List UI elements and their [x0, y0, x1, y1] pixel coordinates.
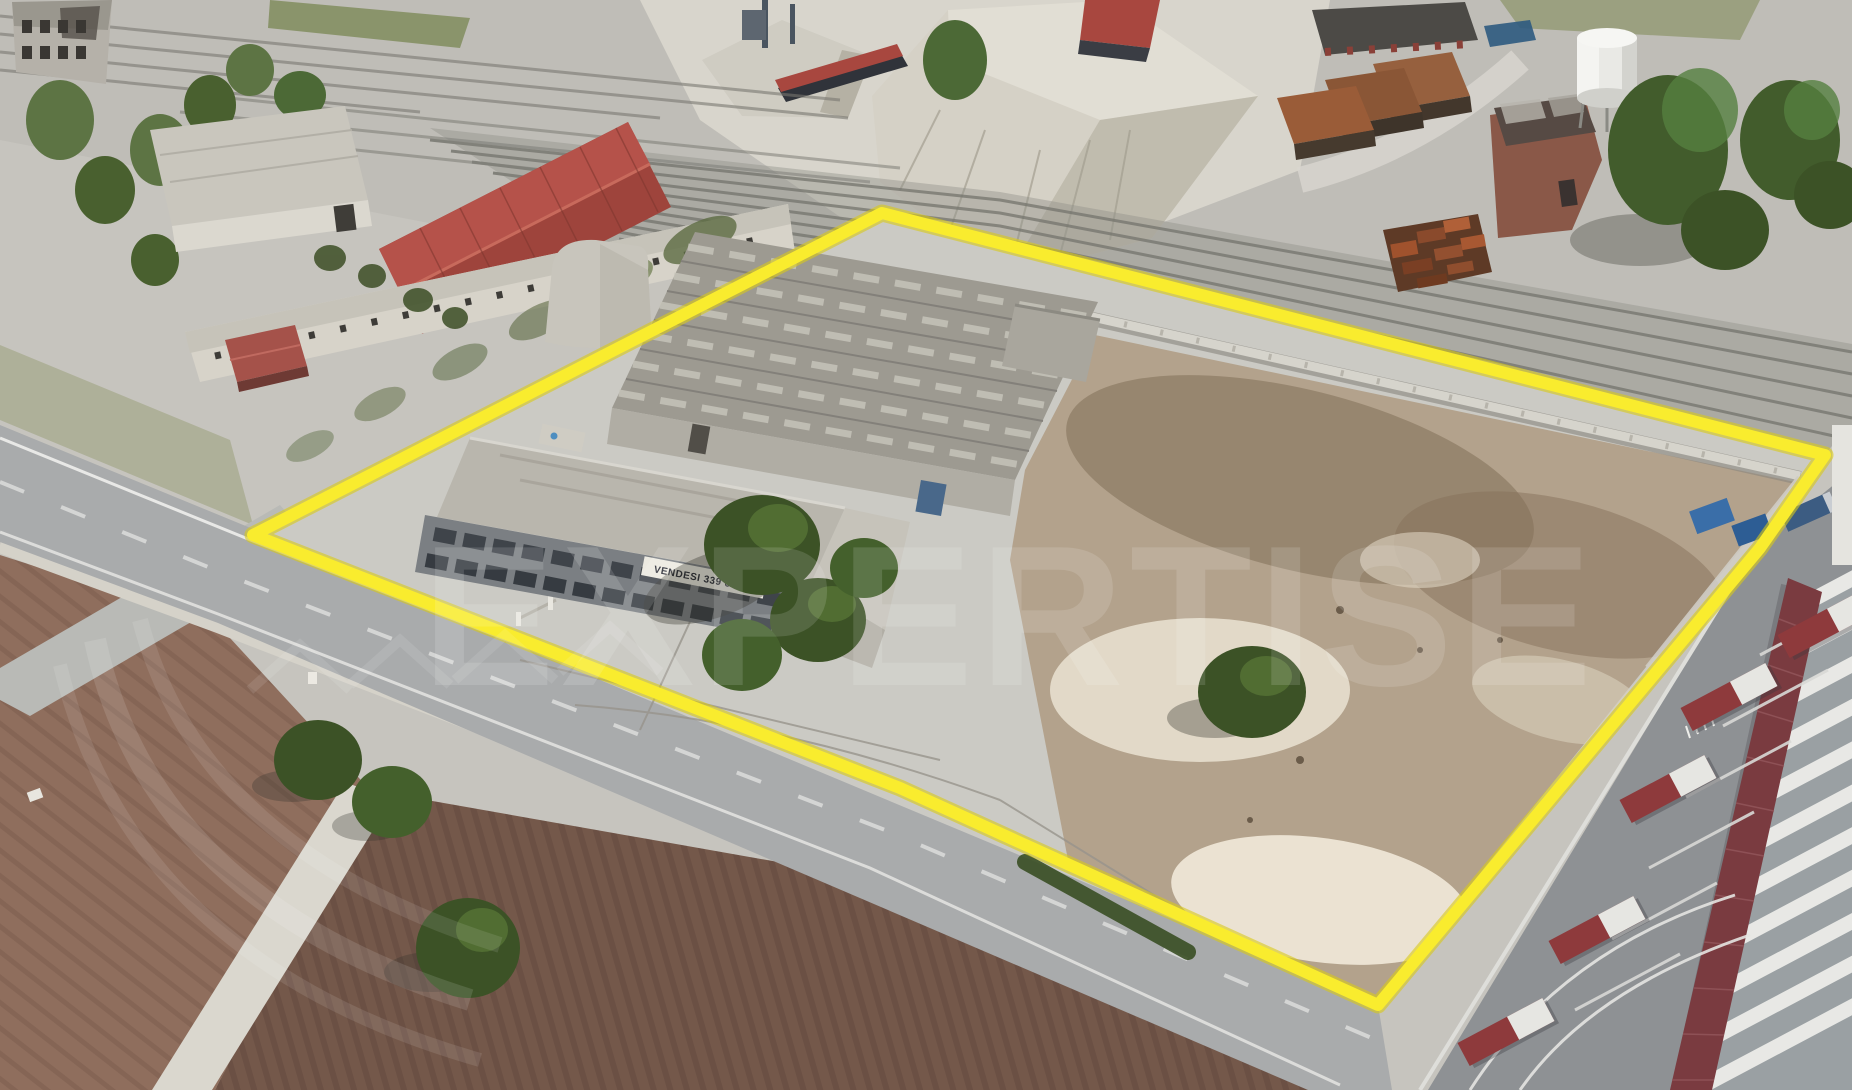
white-wall-edge: [1832, 425, 1852, 565]
rooftop-blue-item: [551, 433, 558, 440]
tree: [923, 20, 987, 100]
mast: [790, 4, 795, 44]
aerial-photo-canvas: VENDESI 339 634…: [0, 0, 1852, 1090]
aerial-photo: VENDESI 339 634…: [0, 0, 1852, 1090]
ruined-building: [12, 0, 112, 84]
dark-door: [333, 204, 356, 232]
watermark-text: EXPERTISE: [422, 505, 1599, 728]
road-sign: [308, 672, 317, 684]
machinery: [742, 10, 766, 40]
warehouse-beige: [150, 106, 372, 252]
red-roof-shed: [1080, 0, 1160, 48]
